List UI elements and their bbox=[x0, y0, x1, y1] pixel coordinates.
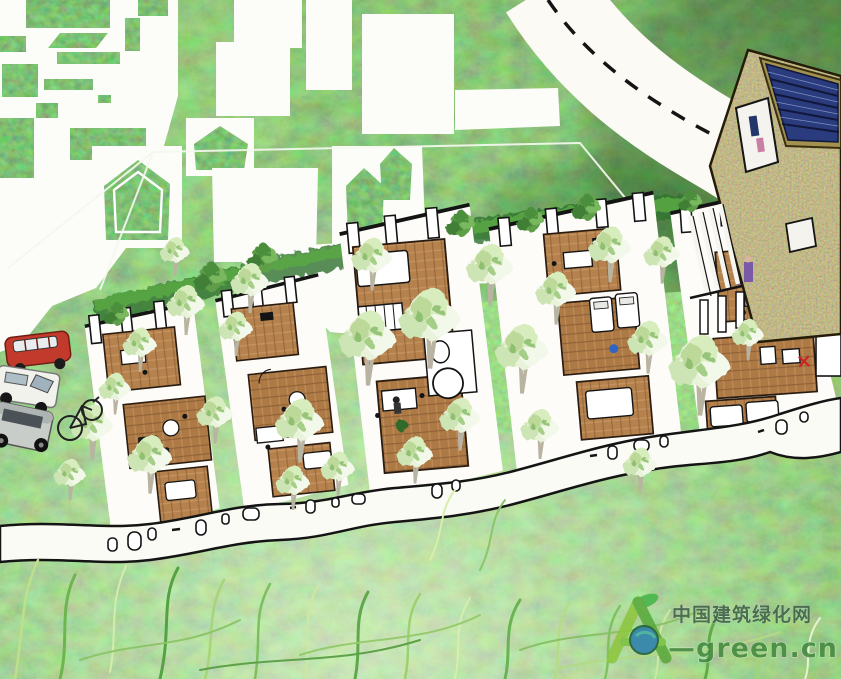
watermark-site-name: 中国建筑绿化网 bbox=[672, 603, 812, 626]
building-lower-window bbox=[786, 218, 816, 252]
architectural-collage-image: 中国建筑绿化网 —green.cn bbox=[0, 0, 841, 679]
watermark-site-url: —green.cn bbox=[668, 633, 838, 664]
collage-canvas: 中国建筑绿化网 —green.cn bbox=[0, 0, 841, 679]
